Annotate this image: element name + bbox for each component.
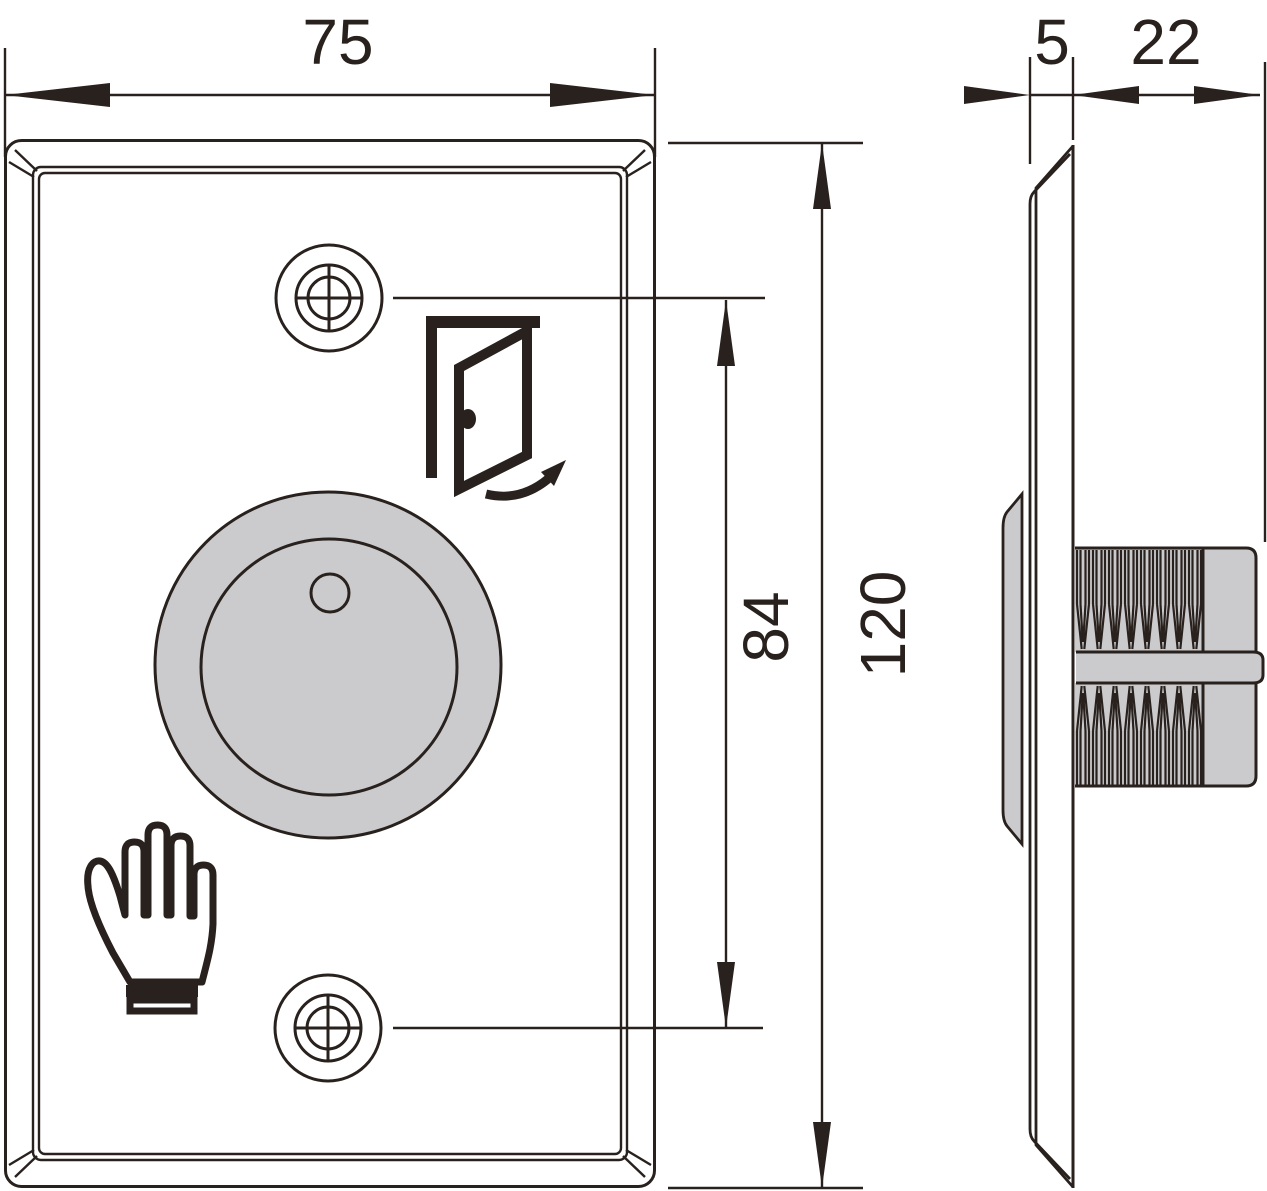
button-bezel-circle bbox=[155, 492, 501, 838]
dim-hole-spacing-label: 84 bbox=[730, 591, 802, 662]
barrel-slot-band bbox=[1076, 652, 1263, 683]
exit-button-dimension-drawing: 75 5 22 84 120 bbox=[0, 0, 1267, 1191]
push-button-front bbox=[155, 492, 501, 838]
threaded-barrel bbox=[1075, 548, 1263, 786]
dim-plate-height-label: 120 bbox=[847, 571, 919, 678]
door-jamb bbox=[426, 316, 437, 478]
hand-cuff-band bbox=[130, 1000, 194, 1011]
dim-barrel-length-label: 22 bbox=[1130, 6, 1201, 78]
technical-drawing-page: 75 5 22 84 120 bbox=[0, 0, 1267, 1191]
door-handle-dot bbox=[460, 409, 476, 429]
dim-plate-thickness-label: 5 bbox=[1034, 6, 1070, 78]
door-lintel bbox=[426, 316, 540, 328]
thread-upper-teeth bbox=[1075, 549, 1203, 652]
thread-lower-teeth bbox=[1075, 683, 1203, 786]
hand-cuff-bar bbox=[126, 985, 198, 997]
button-side-profile bbox=[1003, 494, 1022, 844]
dim-plate-width-label: 75 bbox=[302, 6, 373, 78]
